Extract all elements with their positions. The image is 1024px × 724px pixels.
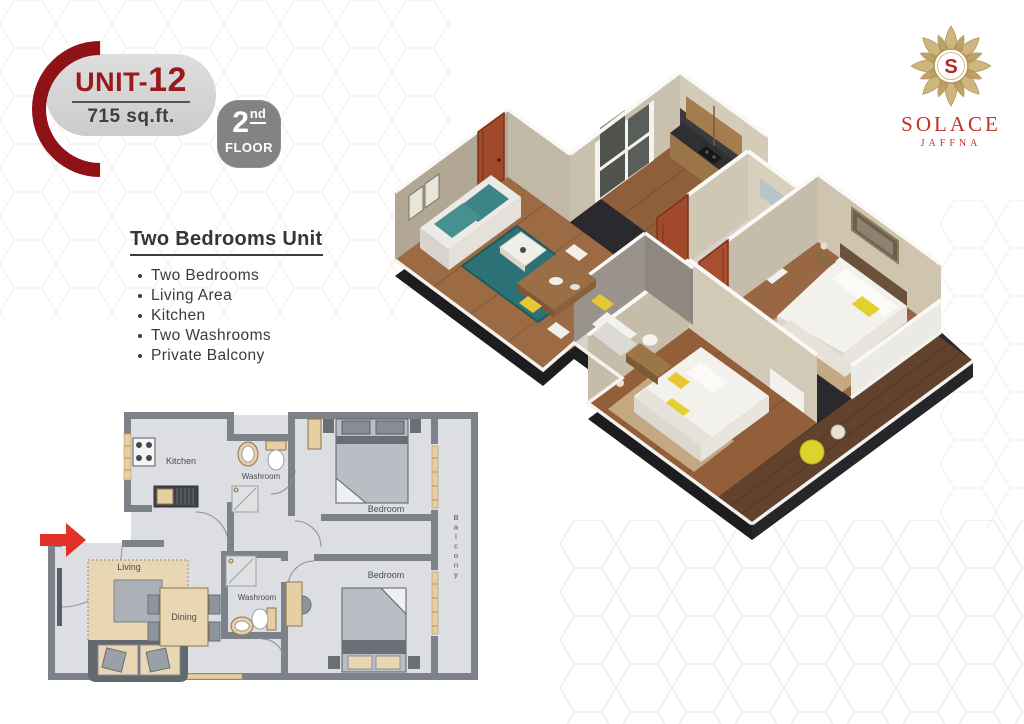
flyer-page: { "badge": { "unit_prefix": "UNIT-", "un…: [0, 0, 1024, 724]
label-bedroom-bottom: Bedroom: [368, 570, 405, 580]
label-dining: Dining: [171, 612, 197, 622]
label-living: Living: [117, 562, 141, 572]
bullet-icon: [138, 334, 142, 338]
label-washroom-bottom: Washroom: [238, 593, 277, 602]
floor-ordinal: nd: [250, 106, 266, 124]
features-heading: Two Bedrooms Unit: [130, 228, 323, 256]
bullet-icon: [138, 294, 142, 298]
floorplan-2d: Kitchen Washroom Bedroom Balcony Living …: [36, 402, 488, 692]
features-section: Two Bedrooms Unit Two Bedrooms Living Ar…: [130, 228, 323, 366]
label-bedroom-top: Bedroom: [368, 504, 405, 514]
floor-badge: 2nd FLOOR: [217, 100, 281, 168]
feature-item: Two Bedrooms: [138, 266, 323, 286]
feature-item: Kitchen: [138, 306, 323, 326]
feature-item: Two Washrooms: [138, 326, 323, 346]
label-kitchen: Kitchen: [166, 456, 196, 466]
logo-monogram: S: [944, 56, 957, 78]
feature-item: Private Balcony: [138, 346, 323, 366]
logo-brand-text: SOLACE: [890, 112, 1012, 137]
label-washroom-top: Washroom: [242, 472, 281, 481]
feature-item: Living Area: [138, 286, 323, 306]
floor-word: FLOOR: [217, 140, 281, 155]
logo-mandala-icon: S: [905, 22, 997, 110]
logo-city-text: JAFFNA: [890, 138, 1012, 149]
bullet-icon: [138, 314, 142, 318]
features-list: Two Bedrooms Living Area Kitchen Two Was…: [130, 266, 323, 366]
unit-badge: UNIT-12 715 sq.ft.: [46, 54, 216, 136]
bean-bag: [800, 440, 824, 464]
floor-number: 2nd: [217, 107, 281, 138]
bullet-icon: [138, 354, 142, 358]
brand-logo: S SOLACE JAFFNA: [890, 22, 1012, 149]
bullet-icon: [138, 274, 142, 278]
